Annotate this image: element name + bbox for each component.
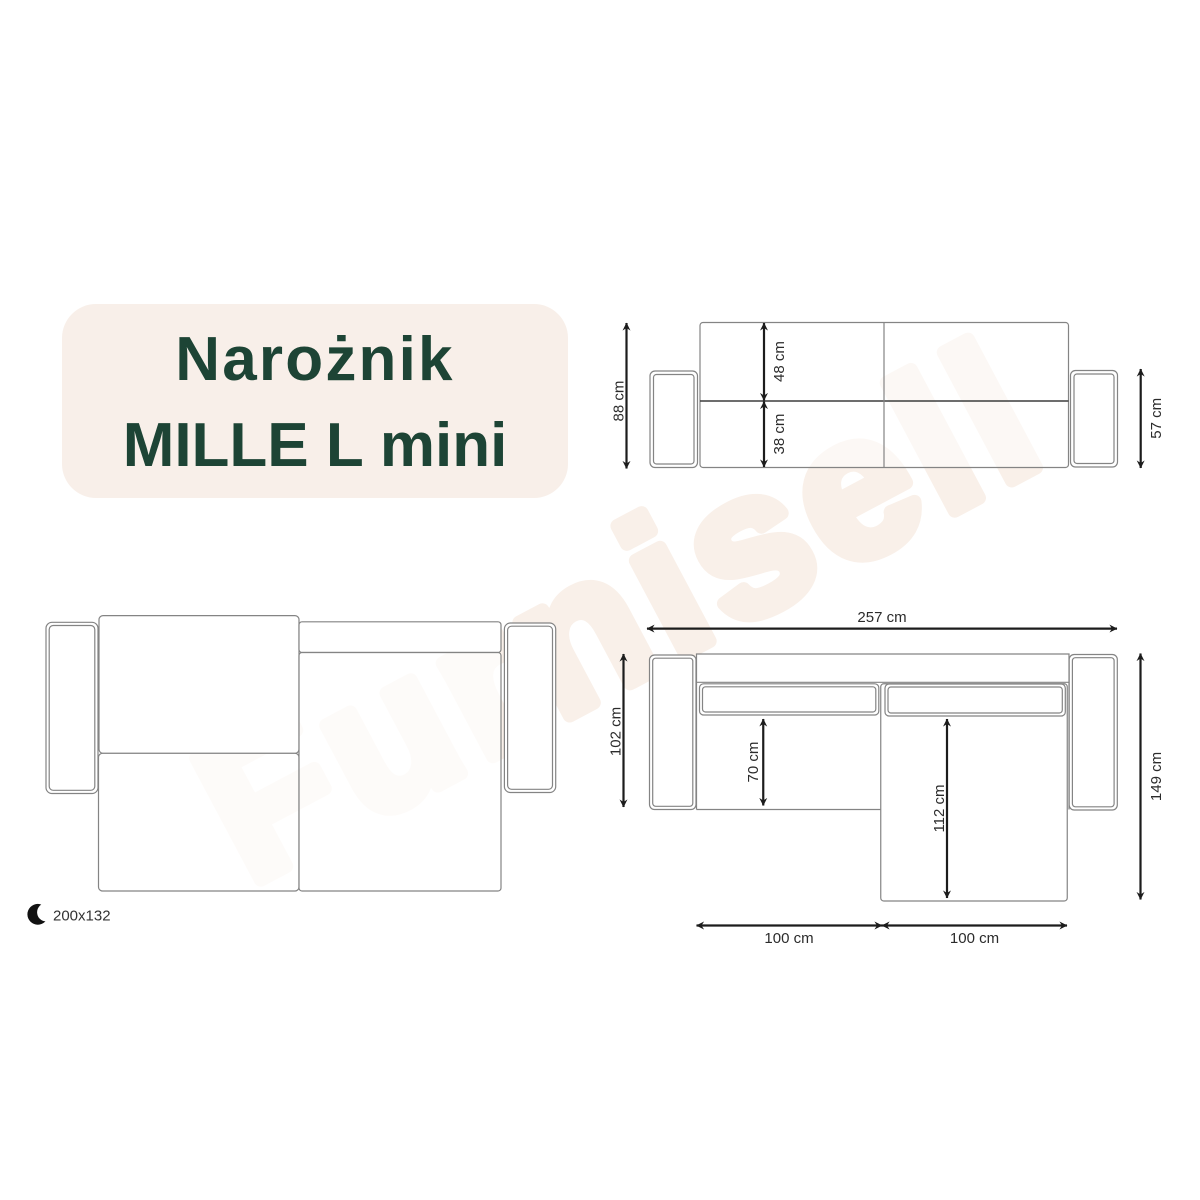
svg-text:100 cm: 100 cm xyxy=(764,930,813,947)
svg-text:100 cm: 100 cm xyxy=(950,930,999,947)
svg-text:70 cm: 70 cm xyxy=(745,742,762,783)
svg-text:112 cm: 112 cm xyxy=(931,784,948,832)
svg-text:88 cm: 88 cm xyxy=(611,381,628,422)
svg-text:57 cm: 57 cm xyxy=(1148,398,1165,439)
svg-text:MILLE L mini: MILLE L mini xyxy=(123,411,508,480)
svg-text:200x132: 200x132 xyxy=(53,908,111,925)
svg-text:102 cm: 102 cm xyxy=(608,707,625,756)
svg-text:38 cm: 38 cm xyxy=(771,414,788,455)
svg-text:149 cm: 149 cm xyxy=(1148,752,1165,801)
svg-text:257 cm: 257 cm xyxy=(857,609,906,626)
svg-text:Narożnik: Narożnik xyxy=(175,325,454,394)
svg-text:48 cm: 48 cm xyxy=(771,341,788,382)
